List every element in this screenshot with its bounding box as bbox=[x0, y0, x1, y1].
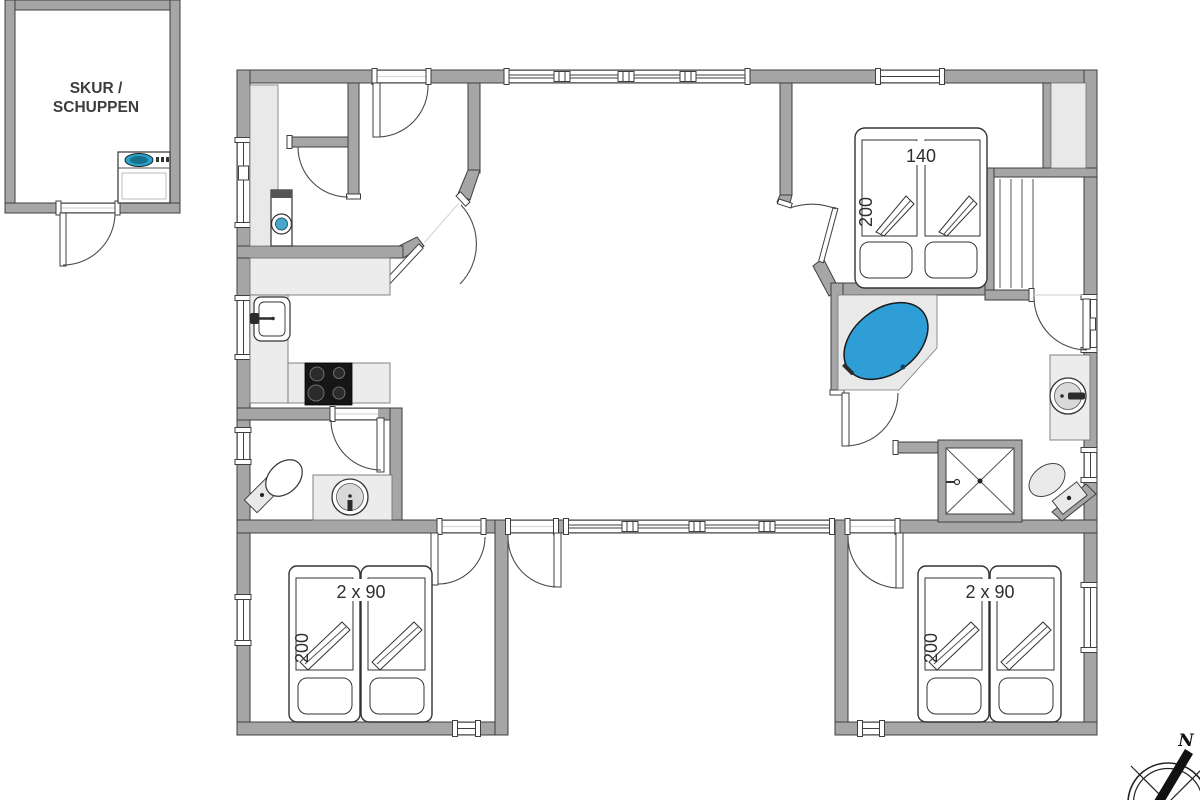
shed-label-line1: SKUR / bbox=[70, 80, 123, 97]
terrace-door bbox=[506, 519, 562, 588]
pillow bbox=[370, 678, 424, 714]
bedroom-twin-left-door bbox=[431, 519, 486, 586]
compass-rose: N bbox=[1128, 731, 1200, 800]
beds-label: 2 x 90 bbox=[965, 582, 1014, 602]
bathtub-drain bbox=[901, 365, 906, 370]
exterior-door-openings bbox=[372, 69, 903, 589]
shed-wall-top bbox=[5, 0, 180, 10]
shed-wall-right bbox=[170, 0, 180, 213]
wall-cabinet-west bbox=[1043, 83, 1051, 168]
shed: SKUR / SCHUPPEN bbox=[5, 0, 180, 266]
kitchen bbox=[250, 258, 390, 405]
bedroom-double-door bbox=[790, 204, 838, 262]
wc-room bbox=[244, 453, 392, 520]
wall-closet-south bbox=[985, 290, 1032, 300]
washing-machine-icon bbox=[118, 152, 170, 203]
north-arrow-icon bbox=[1139, 749, 1193, 800]
wall-right-wing-west bbox=[835, 520, 848, 735]
pillow bbox=[860, 242, 912, 278]
bedroom-double: 140 200 bbox=[855, 128, 987, 288]
washing-machine-icon bbox=[271, 190, 292, 246]
utility-room bbox=[250, 85, 292, 246]
shed-door-leaf bbox=[60, 213, 66, 266]
built-in-cabinet bbox=[1051, 83, 1086, 168]
shed-label-line2: SCHUPPEN bbox=[53, 99, 139, 116]
floor-plan-drawing: SKUR / SCHUPPEN bbox=[0, 0, 1200, 800]
entrance-door bbox=[372, 69, 431, 138]
window-east-bedroom bbox=[1081, 583, 1097, 653]
bedroom-twin-right: 2 x 90 200 bbox=[918, 566, 1061, 722]
wall-cap bbox=[1029, 289, 1034, 302]
washbasin-icon bbox=[332, 479, 368, 515]
bathroom-door bbox=[842, 393, 898, 446]
wc-door bbox=[330, 407, 384, 473]
compass-north-label: N bbox=[1177, 731, 1195, 751]
kitchen-counter-north bbox=[250, 258, 390, 295]
hall-doorway-threshold bbox=[424, 203, 459, 243]
bed-length-label: 200 bbox=[921, 633, 941, 663]
pillow bbox=[999, 678, 1053, 714]
wall-cap bbox=[347, 194, 361, 199]
floor-plan-page: SKUR / SCHUPPEN bbox=[0, 0, 1200, 800]
pillow bbox=[298, 678, 352, 714]
kitchen-sink-icon bbox=[250, 297, 290, 341]
wall-bathroom-south-stub bbox=[895, 442, 943, 453]
shower-icon bbox=[938, 440, 1022, 522]
shed-door-swing-arc bbox=[63, 213, 115, 265]
washbasin-icon bbox=[1050, 378, 1086, 414]
bedroom-twin-left: 2 x 90 200 bbox=[289, 566, 432, 722]
pillow bbox=[925, 242, 977, 278]
wall-cap bbox=[893, 441, 898, 455]
bedroom-twin-right-door bbox=[845, 519, 903, 589]
wall-kitchen-north bbox=[237, 246, 403, 258]
bed-length-label: 200 bbox=[292, 633, 312, 663]
wall-hall-east bbox=[468, 83, 480, 173]
toilet-icon bbox=[244, 453, 309, 513]
bed-length-label: 200 bbox=[856, 197, 876, 227]
window-east-2 bbox=[1081, 448, 1097, 483]
wall-closet-north bbox=[985, 168, 1097, 177]
closet-shelves bbox=[1000, 179, 1033, 288]
closet-door bbox=[1034, 295, 1090, 350]
utility-door-swing-arc bbox=[298, 147, 348, 197]
wall-utility-south bbox=[290, 137, 348, 147]
cooktop-icon bbox=[305, 363, 352, 405]
bathroom bbox=[829, 287, 1090, 522]
wall-cap bbox=[287, 136, 292, 149]
shed-wall-left bbox=[5, 0, 15, 213]
beds-label: 2 x 90 bbox=[336, 582, 385, 602]
pillow bbox=[927, 678, 981, 714]
wall-living-east bbox=[780, 83, 792, 195]
bed-width-label: 140 bbox=[906, 146, 936, 166]
wall-left-wing-east bbox=[495, 520, 508, 735]
wall-utility-east bbox=[348, 83, 359, 197]
